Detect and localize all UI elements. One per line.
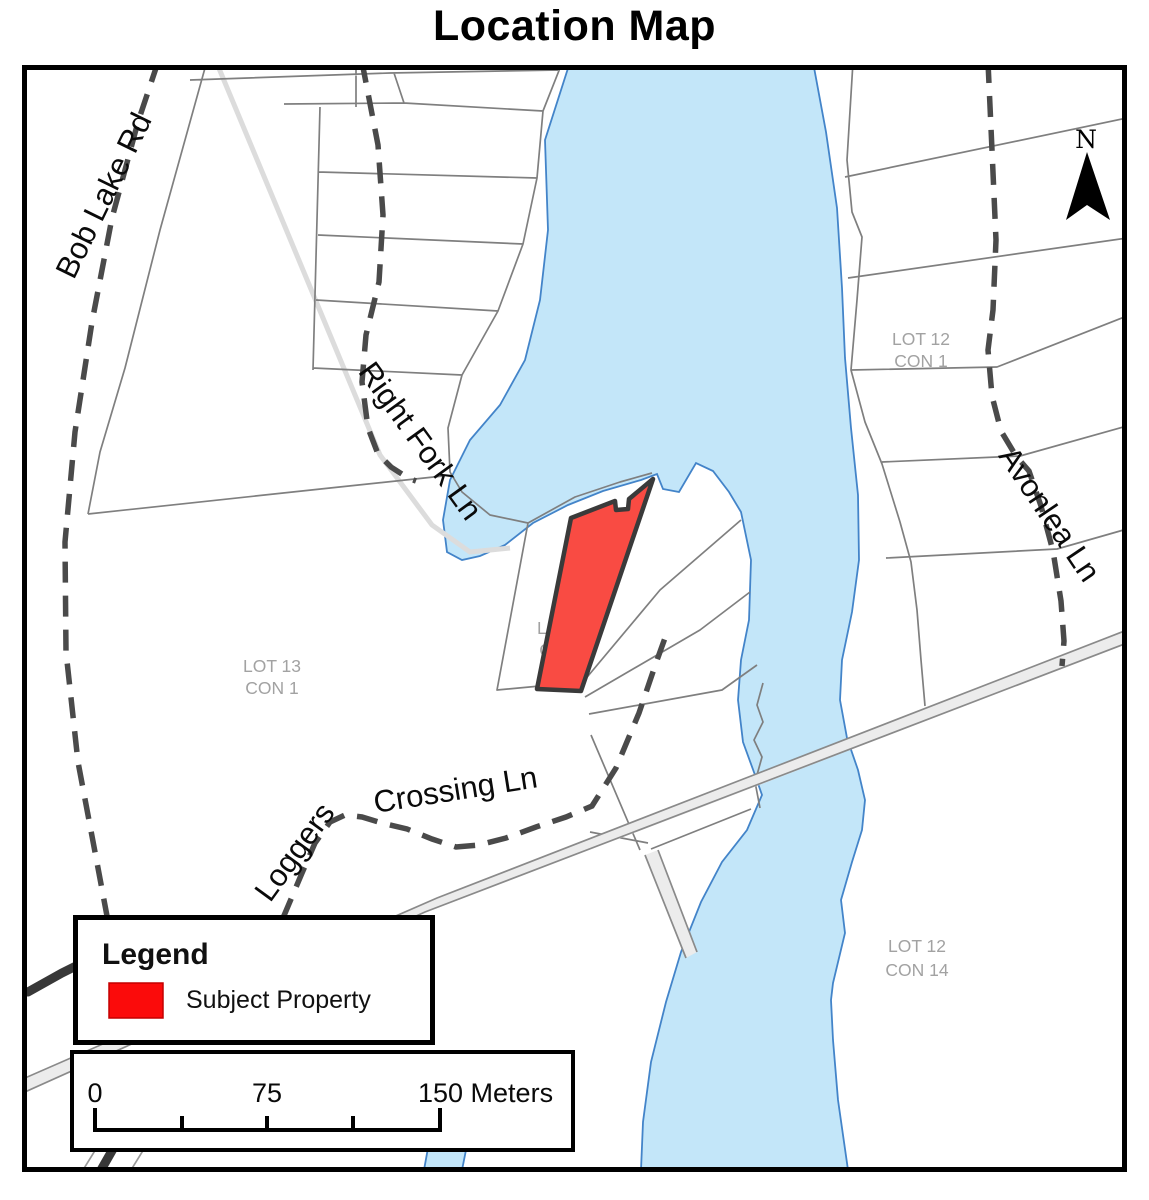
lot-label-lot12-con1-east: LOT 12 CON 1 bbox=[892, 329, 950, 371]
svg-text:LOT 13: LOT 13 bbox=[243, 656, 301, 676]
scale-label-mid: 75 bbox=[252, 1078, 282, 1108]
svg-text:CON 1: CON 1 bbox=[245, 678, 298, 698]
svg-text:CON 1: CON 1 bbox=[894, 351, 947, 371]
subject-property-swatch bbox=[108, 982, 164, 1019]
svg-text:LOT 12: LOT 12 bbox=[888, 936, 946, 956]
road-label-avonlea-ln: Avonlea Ln bbox=[992, 440, 1107, 588]
scale-label-start: 0 bbox=[87, 1078, 102, 1108]
legend-item-subject-property: Subject Property bbox=[108, 982, 430, 1019]
map-frame: LOT 13 CON 1 LOT 12 CON 1 LOT 12 CON 1 L… bbox=[22, 65, 1127, 1172]
legend-box: Legend Subject Property bbox=[73, 915, 435, 1045]
north-arrow: N bbox=[1066, 125, 1110, 220]
svg-text:LOT 12: LOT 12 bbox=[892, 329, 950, 349]
road-label-loggers: Loggers bbox=[247, 796, 341, 907]
page-title: Location Map bbox=[0, 2, 1149, 51]
svg-text:CON 14: CON 14 bbox=[885, 960, 948, 980]
road-label-bob-lake-rd: Bob Lake Rd bbox=[49, 107, 159, 283]
lot-label-lot12-con14: LOT 12 CON 14 bbox=[885, 936, 948, 980]
north-arrow-icon bbox=[1066, 152, 1110, 220]
scale-label-end: 150 Meters bbox=[418, 1078, 553, 1108]
road-avonlea-ln bbox=[988, 70, 1064, 666]
branch-road-surface bbox=[645, 850, 697, 958]
water-body bbox=[443, 70, 865, 1167]
lot-label-lot13-con1: LOT 13 CON 1 bbox=[243, 656, 301, 698]
scale-bar-ticks bbox=[95, 1108, 440, 1130]
road-label-crossing-ln: Crossing Ln bbox=[371, 759, 540, 819]
scale-bar-graphic: 0 75 150 Meters bbox=[74, 1054, 571, 1148]
legend-title: Legend bbox=[102, 940, 430, 970]
legend-item-label: Subject Property bbox=[186, 986, 371, 1015]
scale-bar: 0 75 150 Meters bbox=[70, 1050, 575, 1152]
north-arrow-label: N bbox=[1075, 125, 1097, 154]
